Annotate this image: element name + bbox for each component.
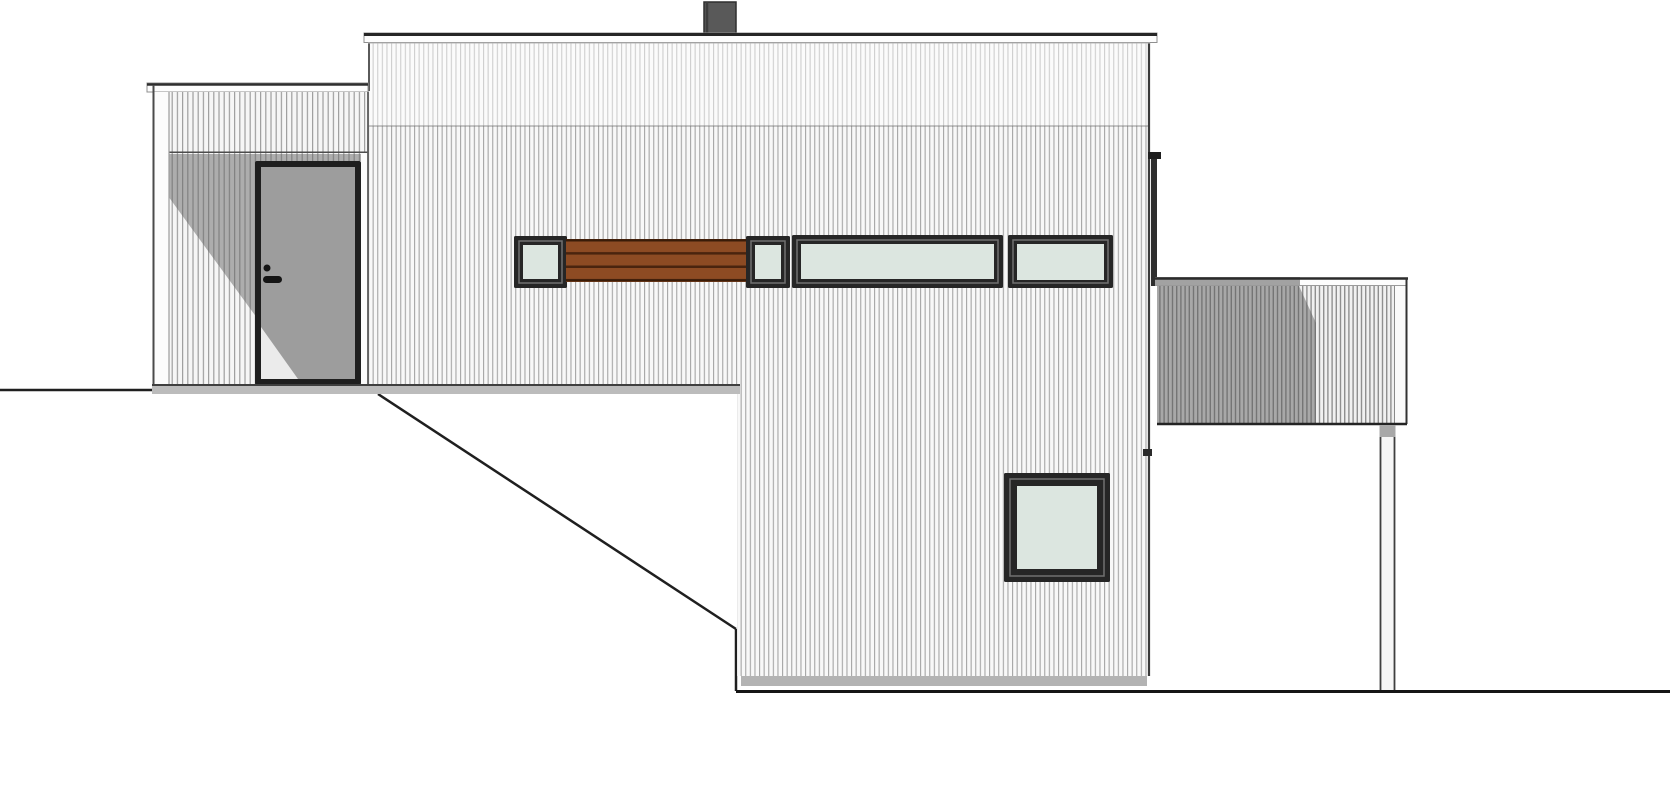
porch-corner-board bbox=[153, 92, 169, 385]
terrain-diagonal-line bbox=[378, 394, 736, 629]
deck-post-top-shadow bbox=[1380, 425, 1396, 437]
elevation-canvas bbox=[0, 0, 1670, 800]
gutter-bracket-upper bbox=[1148, 152, 1161, 159]
main-wall-upper-highlight bbox=[368, 42, 1150, 126]
foundation-shadow-strip bbox=[741, 676, 1147, 686]
porch-upper-band-siding bbox=[153, 92, 368, 153]
window-square-lower-glass bbox=[1017, 486, 1097, 569]
downspout bbox=[1151, 156, 1157, 286]
wood-slat-panel bbox=[566, 239, 746, 282]
porch-right-side-strip bbox=[361, 153, 368, 385]
window-small-1-glass bbox=[523, 245, 558, 279]
door-lock-cylinder bbox=[264, 265, 271, 272]
chimney bbox=[704, 2, 736, 35]
deck-railing-shadow bbox=[1157, 286, 1316, 423]
deck-right-fascia bbox=[1394, 286, 1407, 424]
window-small-2-glass bbox=[755, 245, 781, 279]
door-handle bbox=[263, 276, 282, 283]
window-wide-3-glass bbox=[801, 244, 994, 279]
window-wide-4-glass bbox=[1017, 244, 1104, 280]
deck-post bbox=[1380, 425, 1396, 691]
elevation-shapes bbox=[0, 2, 1670, 692]
elevation-svg bbox=[0, 0, 1670, 800]
gutter-bracket-lower bbox=[1143, 449, 1152, 456]
